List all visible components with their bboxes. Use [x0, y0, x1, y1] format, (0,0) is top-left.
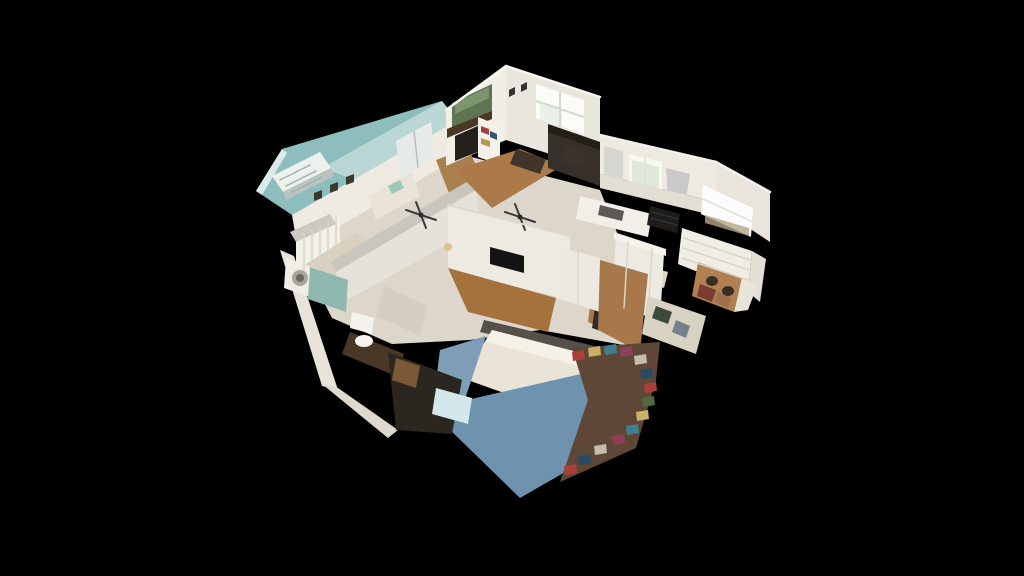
viewer-canvas[interactable]	[0, 0, 1024, 576]
ceiling-fan-hub	[419, 213, 424, 218]
chandelier	[444, 243, 452, 251]
ceiling-fan-hub	[518, 215, 523, 220]
dollhouse-3d-model[interactable]	[0, 0, 1024, 576]
toilet-bowl	[355, 335, 373, 347]
nook-chair	[722, 286, 734, 296]
nook-chair	[706, 276, 718, 286]
washer-door-glass	[296, 274, 304, 282]
